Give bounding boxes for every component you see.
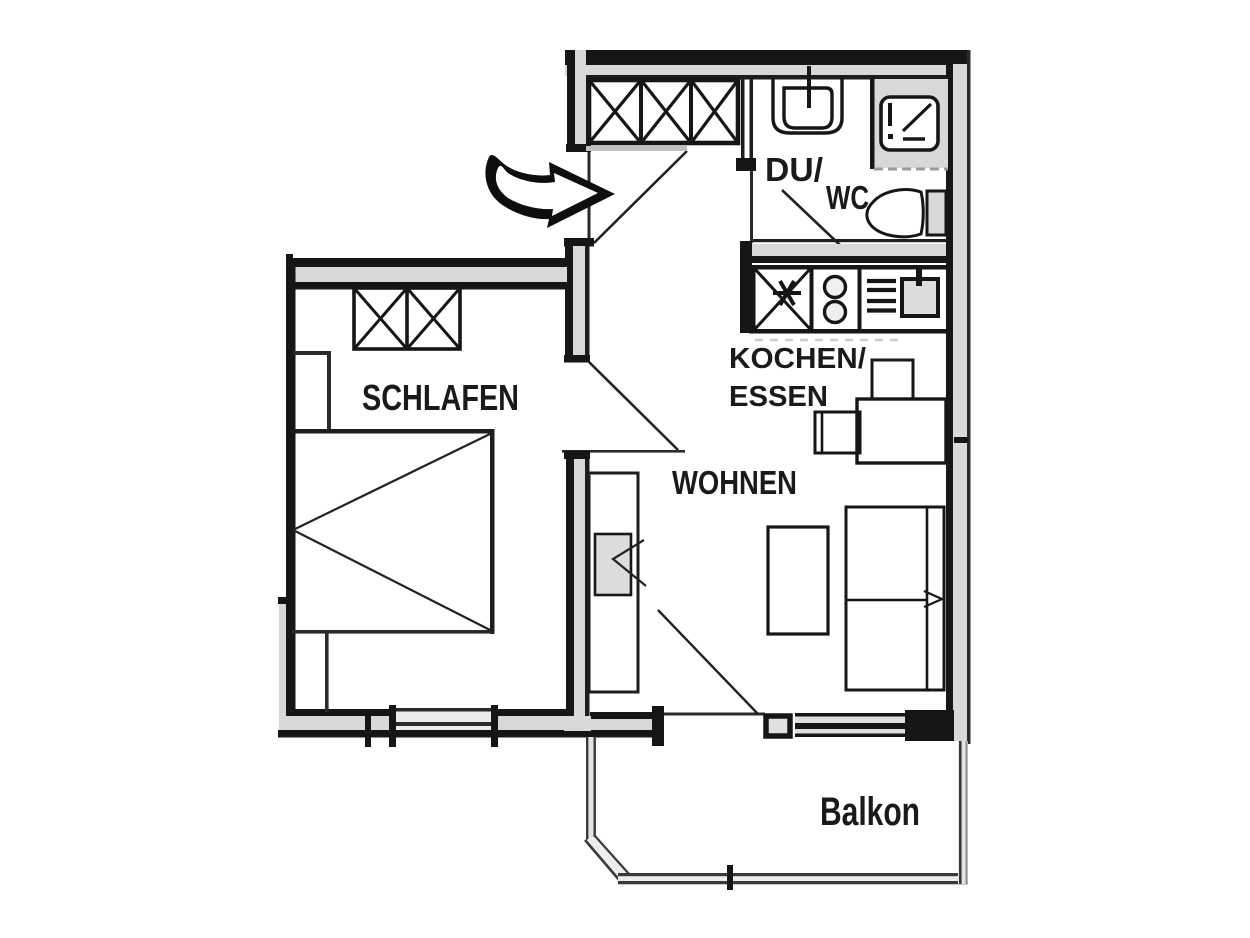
svg-text:WC: WC (826, 179, 869, 216)
svg-text:Balkon: Balkon (820, 790, 920, 834)
svg-text:WOHNEN: WOHNEN (672, 464, 797, 501)
svg-text:DU/: DU/ (765, 151, 823, 188)
svg-text:ESSEN: ESSEN (729, 381, 828, 413)
svg-text:SCHLAFEN: SCHLAFEN (362, 377, 519, 418)
svg-text:KOCHEN/: KOCHEN/ (729, 343, 866, 375)
